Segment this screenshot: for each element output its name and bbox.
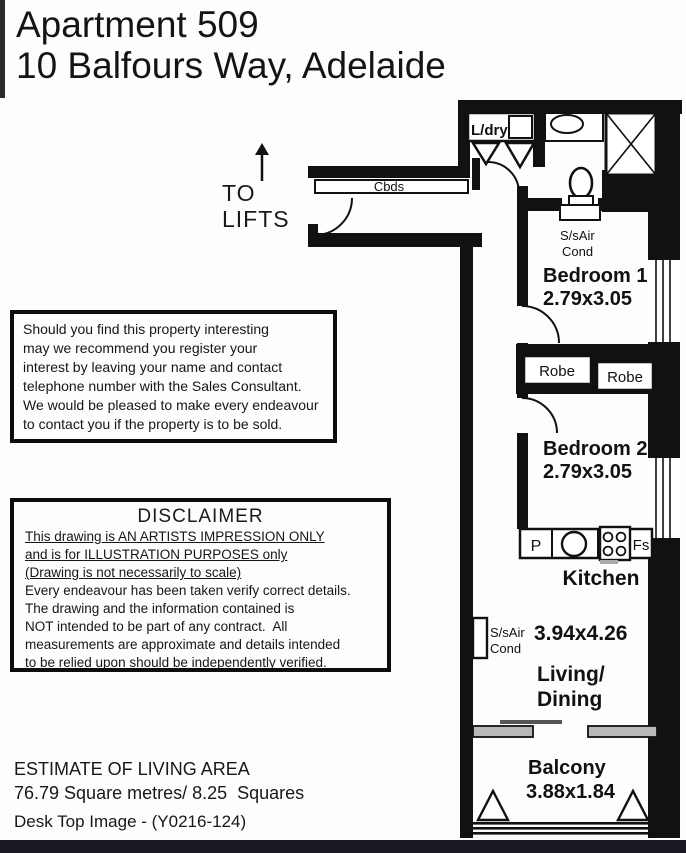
balcony-triangle-icon: [618, 791, 648, 820]
wall-hall-bedroom2: [517, 433, 528, 529]
balcony-name-label: Balcony: [528, 757, 607, 779]
living-label-line2: Dining: [537, 688, 602, 711]
aircon2-label-line1: S/sAir: [490, 625, 525, 640]
balcony-triangle-icon: [478, 791, 508, 820]
aircon-unit-bedroom1: [560, 205, 600, 220]
wall-hall-stub: [472, 158, 480, 190]
bedroom2-dims-label: 2.79x3.05: [543, 461, 632, 483]
entry-door-arc: [315, 198, 352, 235]
wall-left-lower: [460, 233, 473, 838]
window-bedroom1: [648, 260, 680, 342]
aircon2-label-line2: Cond: [490, 641, 521, 656]
pantry-label: P: [531, 538, 542, 555]
balcony-dims-label: 3.88x1.84: [526, 781, 616, 803]
bottom-border-bar: [0, 840, 686, 853]
robe-right-label: Robe: [607, 369, 643, 386]
wall-bath-bottom-left: [517, 198, 562, 211]
bedroom1-door-arc: [522, 306, 559, 343]
kitchen-label: Kitchen: [562, 567, 639, 590]
balcony-sliding-door: [473, 720, 657, 737]
laundry-trough-icon: [509, 116, 532, 138]
aircon1-label-line1: S/sAir: [560, 228, 595, 243]
laundry-label: L/dry: [471, 122, 508, 139]
basin-icon: [551, 115, 583, 133]
aircon1-label-line2: Cond: [562, 244, 593, 259]
floorplan-page: Apartment 509 10 Balfours Way, Adelaide …: [0, 0, 686, 853]
bedroom1-dims-label: 2.79x3.05: [543, 288, 632, 310]
bifold-door-icon: [506, 143, 534, 167]
wall-corridor-top: [308, 166, 470, 178]
fridge-space-label: Fs: [633, 537, 650, 554]
shower-icon: [606, 113, 656, 175]
balcony-railing: [465, 822, 658, 835]
bedroom2-door-arc: [522, 398, 557, 433]
sink-icon: [562, 532, 586, 556]
wall-corridor-bottom: [308, 233, 482, 247]
aircon-unit-living: [473, 618, 487, 658]
living-label-line1: Living/: [537, 663, 605, 686]
bedroom2-name-label: Bedroom 2: [543, 438, 647, 460]
hall-door-arc: [488, 162, 519, 193]
living-dims-label: 3.94x4.26: [534, 622, 627, 645]
bedroom1-name-label: Bedroom 1: [543, 265, 647, 287]
robe-left-label: Robe: [539, 363, 575, 380]
cupboards-label: Cbds: [374, 179, 405, 194]
toilet-icon: [569, 168, 593, 205]
window-bedroom2: [648, 458, 680, 538]
cooktop-icon: [600, 527, 630, 560]
floorplan-drawing: Cbds L/dry S/sAir Cond Bedroom 1 2.79x3.…: [0, 0, 686, 853]
